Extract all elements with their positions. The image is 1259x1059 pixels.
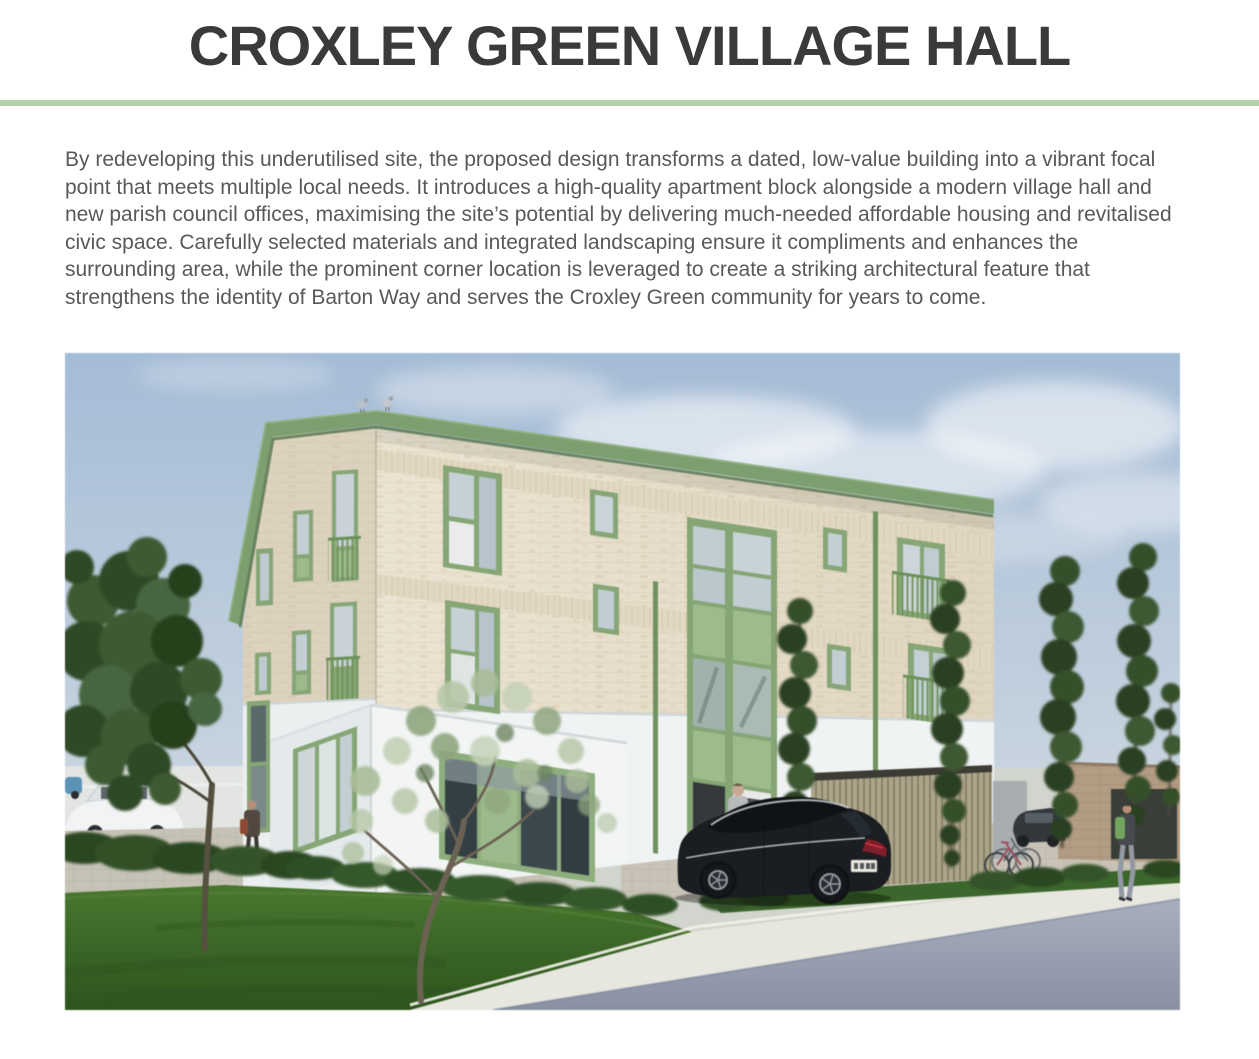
intro-paragraph: By redeveloping this underutilised site,…	[65, 146, 1180, 311]
page-header: CROXLEY GREEN VILLAGE HALL	[0, 0, 1259, 106]
render-figure	[65, 353, 1180, 1010]
architectural-render	[65, 353, 1180, 1010]
downpipe-left	[653, 581, 658, 854]
downpipe-right	[873, 511, 878, 772]
page-title: CROXLEY GREEN VILLAGE HALL	[0, 18, 1259, 74]
green-divider	[0, 100, 1259, 106]
